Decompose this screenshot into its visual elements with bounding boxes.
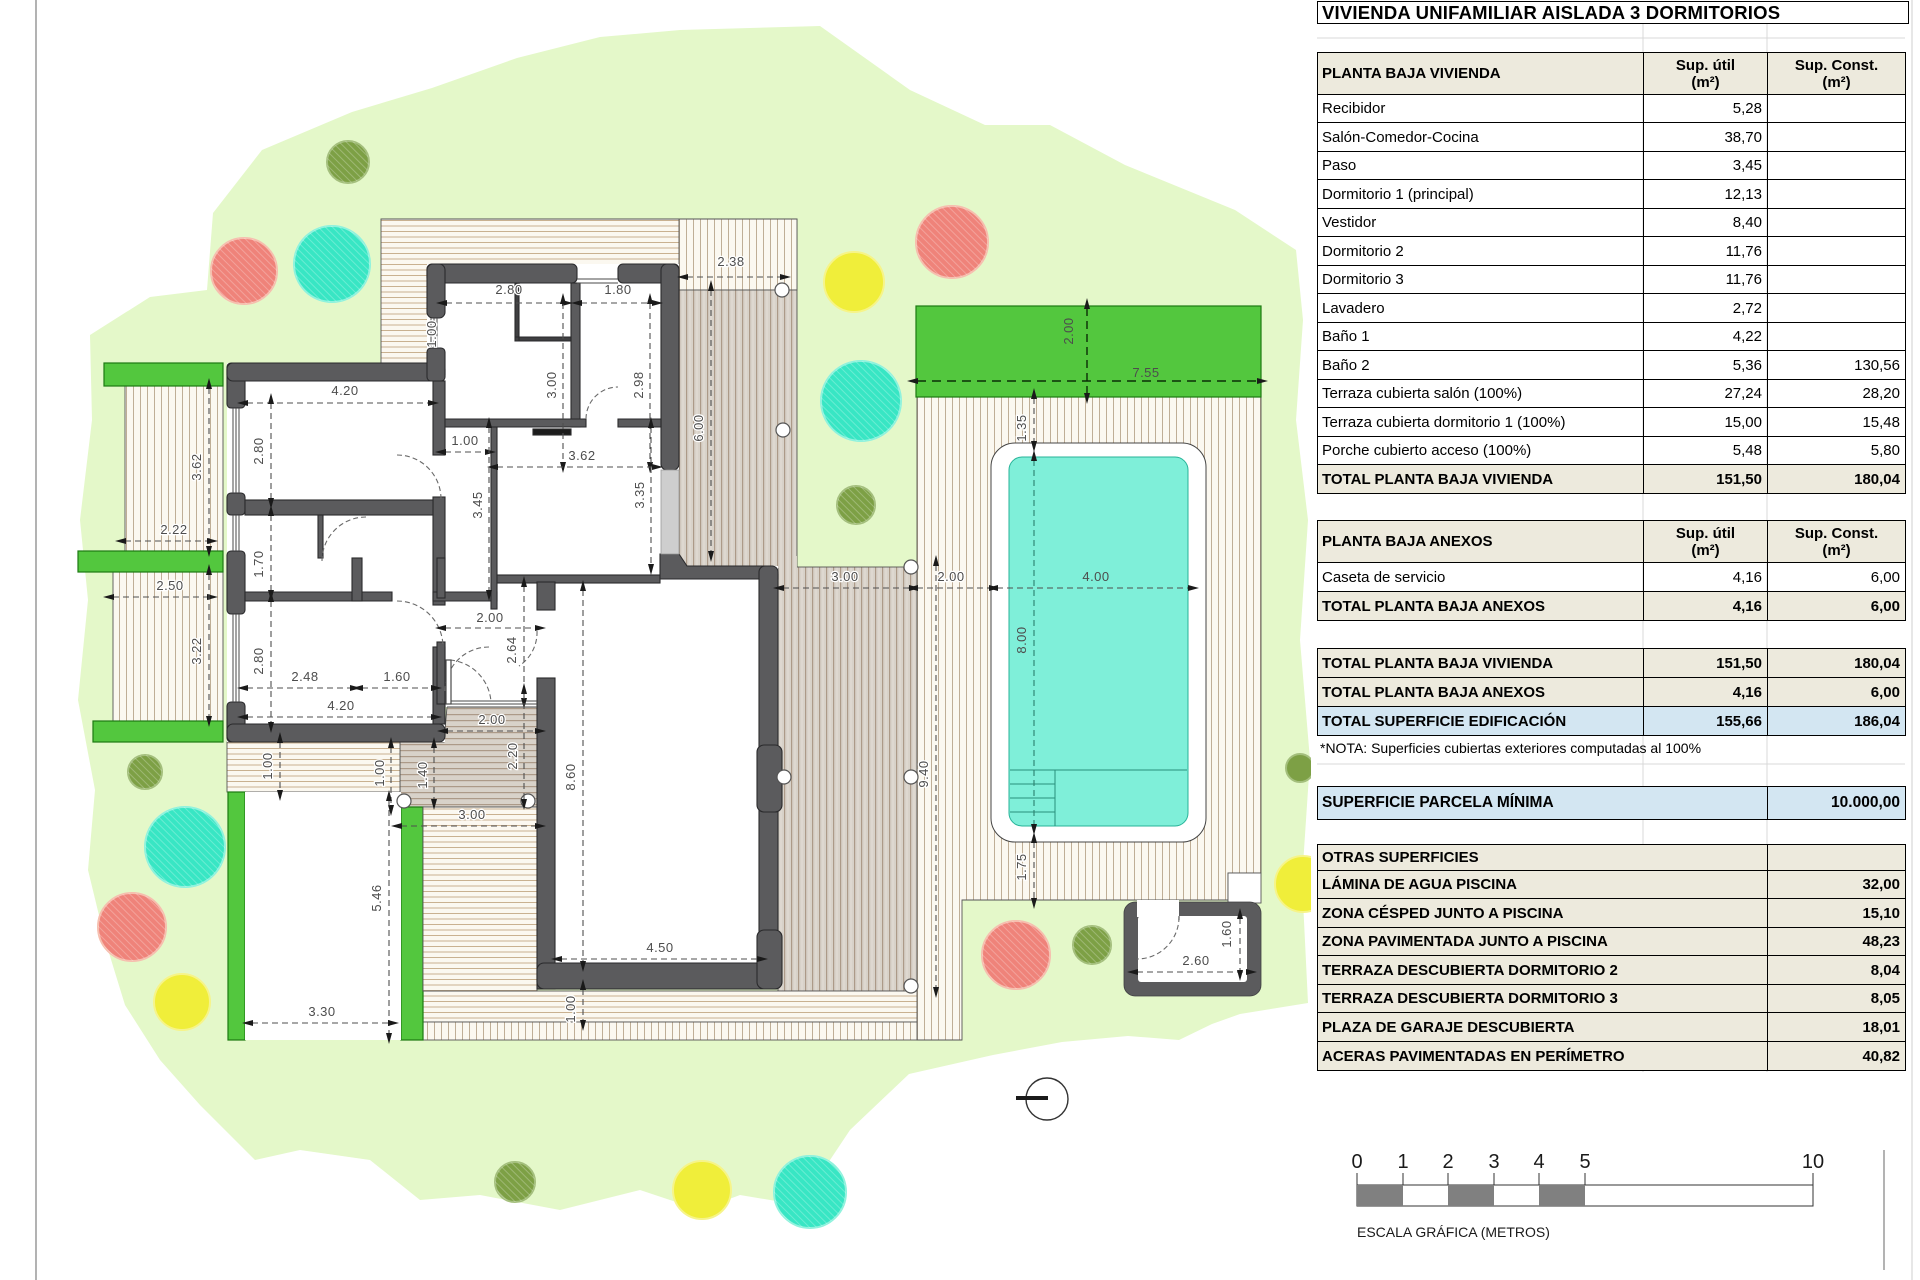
svg-text:1.60: 1.60 — [383, 669, 410, 684]
svg-text:1.35: 1.35 — [1014, 414, 1029, 441]
svg-text:3.35: 3.35 — [632, 481, 647, 508]
svg-text:2.00: 2.00 — [476, 610, 503, 625]
svg-text:2.50: 2.50 — [156, 578, 183, 593]
svg-text:2.60: 2.60 — [1182, 953, 1209, 968]
svg-text:5: 5 — [1579, 1151, 1590, 1173]
svg-text:4.20: 4.20 — [327, 698, 354, 713]
svg-text:1: 1 — [1397, 1151, 1408, 1173]
svg-text:4.00: 4.00 — [1082, 569, 1109, 584]
svg-text:2.80: 2.80 — [251, 647, 266, 674]
svg-text:3.62: 3.62 — [189, 453, 204, 480]
svg-text:1.00: 1.00 — [451, 433, 478, 448]
svg-text:7.55: 7.55 — [1132, 365, 1159, 380]
svg-text:2.64: 2.64 — [504, 636, 519, 663]
svg-text:4.50: 4.50 — [646, 940, 673, 955]
svg-text:1.70: 1.70 — [251, 550, 266, 577]
svg-text:2.48: 2.48 — [291, 669, 318, 684]
svg-text:2.80: 2.80 — [251, 437, 266, 464]
svg-text:2.00: 2.00 — [478, 712, 505, 727]
svg-text:1.40: 1.40 — [415, 761, 430, 788]
svg-text:2.00: 2.00 — [1061, 317, 1076, 344]
svg-text:3.00: 3.00 — [544, 371, 559, 398]
svg-text:8.60: 8.60 — [563, 763, 578, 790]
svg-text:4: 4 — [1533, 1151, 1544, 1173]
svg-text:1.00: 1.00 — [563, 995, 578, 1022]
svg-text:1.80: 1.80 — [604, 282, 631, 297]
svg-text:3.62: 3.62 — [568, 448, 595, 463]
svg-text:4.20: 4.20 — [331, 383, 358, 398]
svg-text:3.45: 3.45 — [470, 491, 485, 518]
svg-text:1.75: 1.75 — [1014, 853, 1029, 880]
svg-text:3.00: 3.00 — [831, 569, 858, 584]
svg-text:6.00: 6.00 — [691, 414, 706, 441]
svg-text:2: 2 — [1442, 1151, 1453, 1173]
svg-text:2.98: 2.98 — [631, 371, 646, 398]
svg-text:1.00: 1.00 — [372, 759, 387, 786]
svg-text:1.00: 1.00 — [260, 752, 275, 779]
svg-text:3: 3 — [1488, 1151, 1499, 1173]
svg-text:2.80: 2.80 — [495, 282, 522, 297]
svg-text:1.60: 1.60 — [1219, 920, 1234, 947]
svg-text:2.00: 2.00 — [937, 569, 964, 584]
svg-text:2.22: 2.22 — [160, 522, 187, 537]
svg-text:2.20: 2.20 — [505, 742, 520, 769]
svg-text:ESCALA GRÁFICA (METROS): ESCALA GRÁFICA (METROS) — [1357, 1224, 1550, 1240]
svg-text:3.22: 3.22 — [189, 637, 204, 664]
svg-text:10: 10 — [1802, 1151, 1824, 1173]
svg-text:5.46: 5.46 — [369, 884, 384, 911]
svg-text:3.00: 3.00 — [458, 807, 485, 822]
svg-text:8.00: 8.00 — [1014, 626, 1029, 653]
svg-text:2.38: 2.38 — [717, 254, 744, 269]
svg-text:1.00: 1.00 — [424, 320, 439, 347]
svg-text:0: 0 — [1351, 1151, 1362, 1173]
svg-text:9.40: 9.40 — [916, 760, 931, 787]
svg-text:3.30: 3.30 — [308, 1004, 335, 1019]
